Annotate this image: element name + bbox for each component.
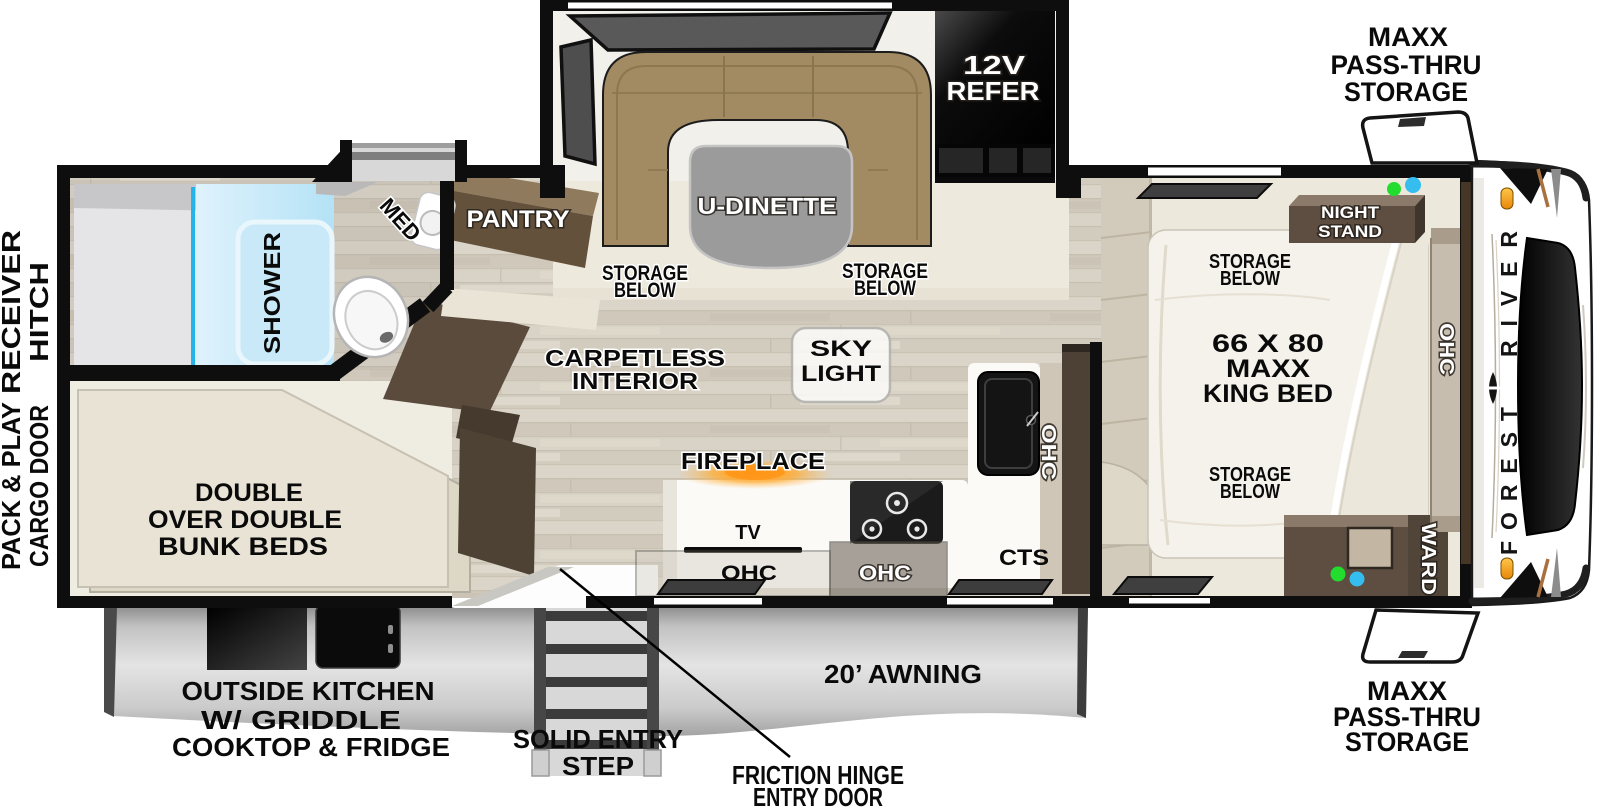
svg-text:SKY: SKY	[810, 336, 872, 361]
svg-text:OHC: OHC	[721, 562, 777, 585]
svg-text:TV: TV	[735, 522, 761, 544]
svg-text:BELOW: BELOW	[1220, 268, 1280, 290]
svg-text:OHC: OHC	[1435, 323, 1457, 375]
svg-text:FIREPLACE: FIREPLACE	[681, 448, 825, 474]
svg-text:OHC: OHC	[1037, 424, 1059, 480]
svg-text:REFER: REFER	[947, 76, 1040, 106]
svg-text:W/ GRIDDLE: W/ GRIDDLE	[201, 705, 401, 735]
svg-text:RECEIVER: RECEIVER	[0, 230, 26, 394]
svg-text:BELOW: BELOW	[614, 279, 676, 302]
svg-text:OHC: OHC	[859, 562, 911, 585]
svg-text:CARGO DOOR: CARGO DOOR	[24, 405, 54, 567]
svg-text:WARD: WARD	[1417, 523, 1439, 595]
svg-text:OUTSIDE KITCHEN: OUTSIDE KITCHEN	[182, 676, 435, 706]
svg-text:KING BED: KING BED	[1203, 380, 1333, 408]
svg-text:STAND: STAND	[1318, 222, 1382, 241]
svg-text:BUNK BEDS: BUNK BEDS	[158, 533, 328, 561]
svg-text:CTS: CTS	[999, 545, 1049, 570]
svg-text:ENTRY DOOR: ENTRY DOOR	[753, 782, 883, 808]
svg-text:INTERIOR: INTERIOR	[572, 368, 698, 394]
svg-text:COOKTOP & FRIDGE: COOKTOP & FRIDGE	[172, 732, 450, 762]
svg-text:BELOW: BELOW	[854, 277, 916, 300]
svg-text:STORAGE: STORAGE	[1344, 77, 1468, 107]
svg-text:PASS-THRU: PASS-THRU	[1331, 50, 1482, 80]
svg-text:20’ AWNING: 20’ AWNING	[824, 659, 982, 689]
svg-text:STORAGE: STORAGE	[1345, 727, 1469, 757]
svg-text:DOUBLE: DOUBLE	[195, 479, 303, 507]
svg-text:PACK & PLAY: PACK & PLAY	[0, 402, 26, 570]
svg-text:HITCH: HITCH	[24, 262, 54, 362]
svg-text:LIGHT: LIGHT	[801, 361, 882, 386]
svg-text:PANTRY: PANTRY	[467, 206, 570, 233]
svg-text:MAXX: MAXX	[1226, 355, 1310, 383]
svg-text:SHOWER: SHOWER	[259, 232, 285, 354]
svg-text:SOLID ENTRY: SOLID ENTRY	[513, 724, 683, 754]
svg-text:MAXX: MAXX	[1368, 22, 1448, 52]
svg-text:U-DINETTE: U-DINETTE	[698, 193, 837, 219]
svg-text:OVER DOUBLE: OVER DOUBLE	[148, 506, 342, 534]
svg-text:STEP: STEP	[562, 751, 634, 781]
svg-text:BELOW: BELOW	[1220, 481, 1280, 503]
svg-text:66 X 80: 66 X 80	[1212, 330, 1324, 358]
svg-text:NIGHT: NIGHT	[1321, 203, 1380, 222]
